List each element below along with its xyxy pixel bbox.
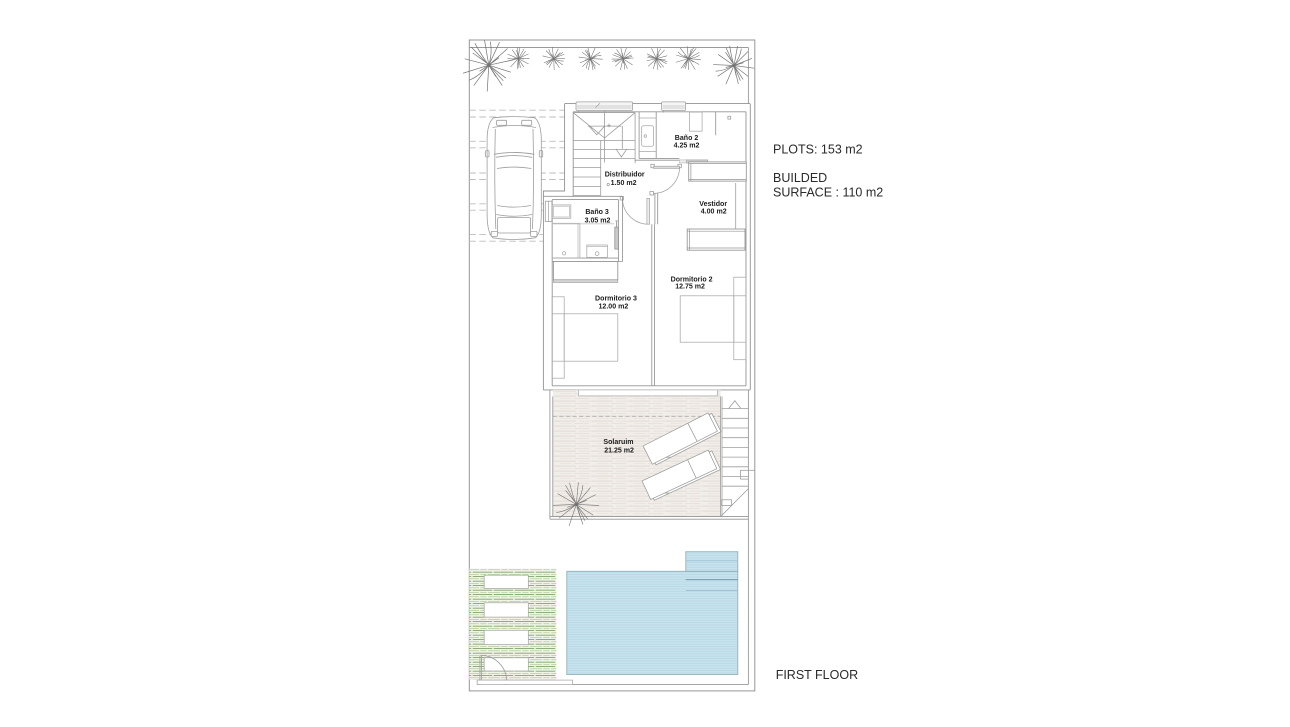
svg-text:Distribuidor: Distribuidor — [605, 171, 645, 178]
svg-text:BUILDED: BUILDED — [773, 171, 827, 185]
svg-text:PLOTS: 153 m2: PLOTS: 153 m2 — [773, 143, 863, 157]
svg-text:3.05 m2: 3.05 m2 — [585, 217, 611, 224]
svg-text:Solaruim: Solaruim — [603, 439, 633, 446]
svg-text:12.00 m2: 12.00 m2 — [599, 304, 629, 311]
svg-text:Baño 2: Baño 2 — [675, 135, 699, 142]
svg-text:SURFACE : 110 m2: SURFACE : 110 m2 — [773, 185, 883, 199]
svg-text:4.25 m2: 4.25 m2 — [674, 142, 700, 149]
svg-text:1.50 m2: 1.50 m2 — [611, 180, 637, 187]
svg-text:21.25 m2: 21.25 m2 — [604, 447, 634, 454]
svg-text:FIRST FLOOR: FIRST FLOOR — [776, 668, 858, 682]
svg-text:4.00 m2: 4.00 m2 — [701, 209, 727, 216]
svg-text:12.75 m2: 12.75 m2 — [675, 284, 705, 291]
svg-text:Baño 3: Baño 3 — [585, 209, 609, 216]
svg-text:Dormitorio 3: Dormitorio 3 — [595, 295, 637, 302]
svg-text:Vestidor: Vestidor — [699, 201, 727, 208]
svg-text:Dormitorio 2: Dormitorio 2 — [671, 276, 713, 283]
